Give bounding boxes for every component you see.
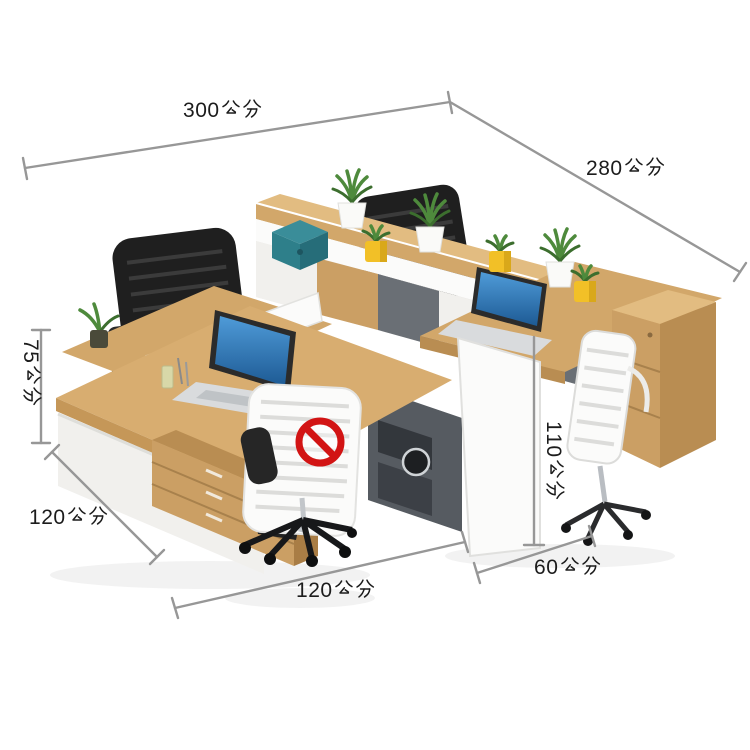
end-panel-white [458,338,540,556]
workstation-illustration [0,0,750,750]
speaker-icon [403,449,429,475]
dim-label-depth: 280 [586,157,665,179]
dim-label-left-depth: 120 [29,506,108,528]
product-dimension-diagram: 300 280 75 120 120 110 60 [0,0,750,750]
prohibition-icon [299,421,341,463]
dim-label-front-width: 120 [296,579,375,601]
dim-label-partition-height: 110 [543,421,565,500]
dim-label-top-width: 300 [183,99,262,121]
dim-label-cabinet-depth: 60 [534,556,601,578]
dim-label-desk-height: 75 [20,339,42,406]
